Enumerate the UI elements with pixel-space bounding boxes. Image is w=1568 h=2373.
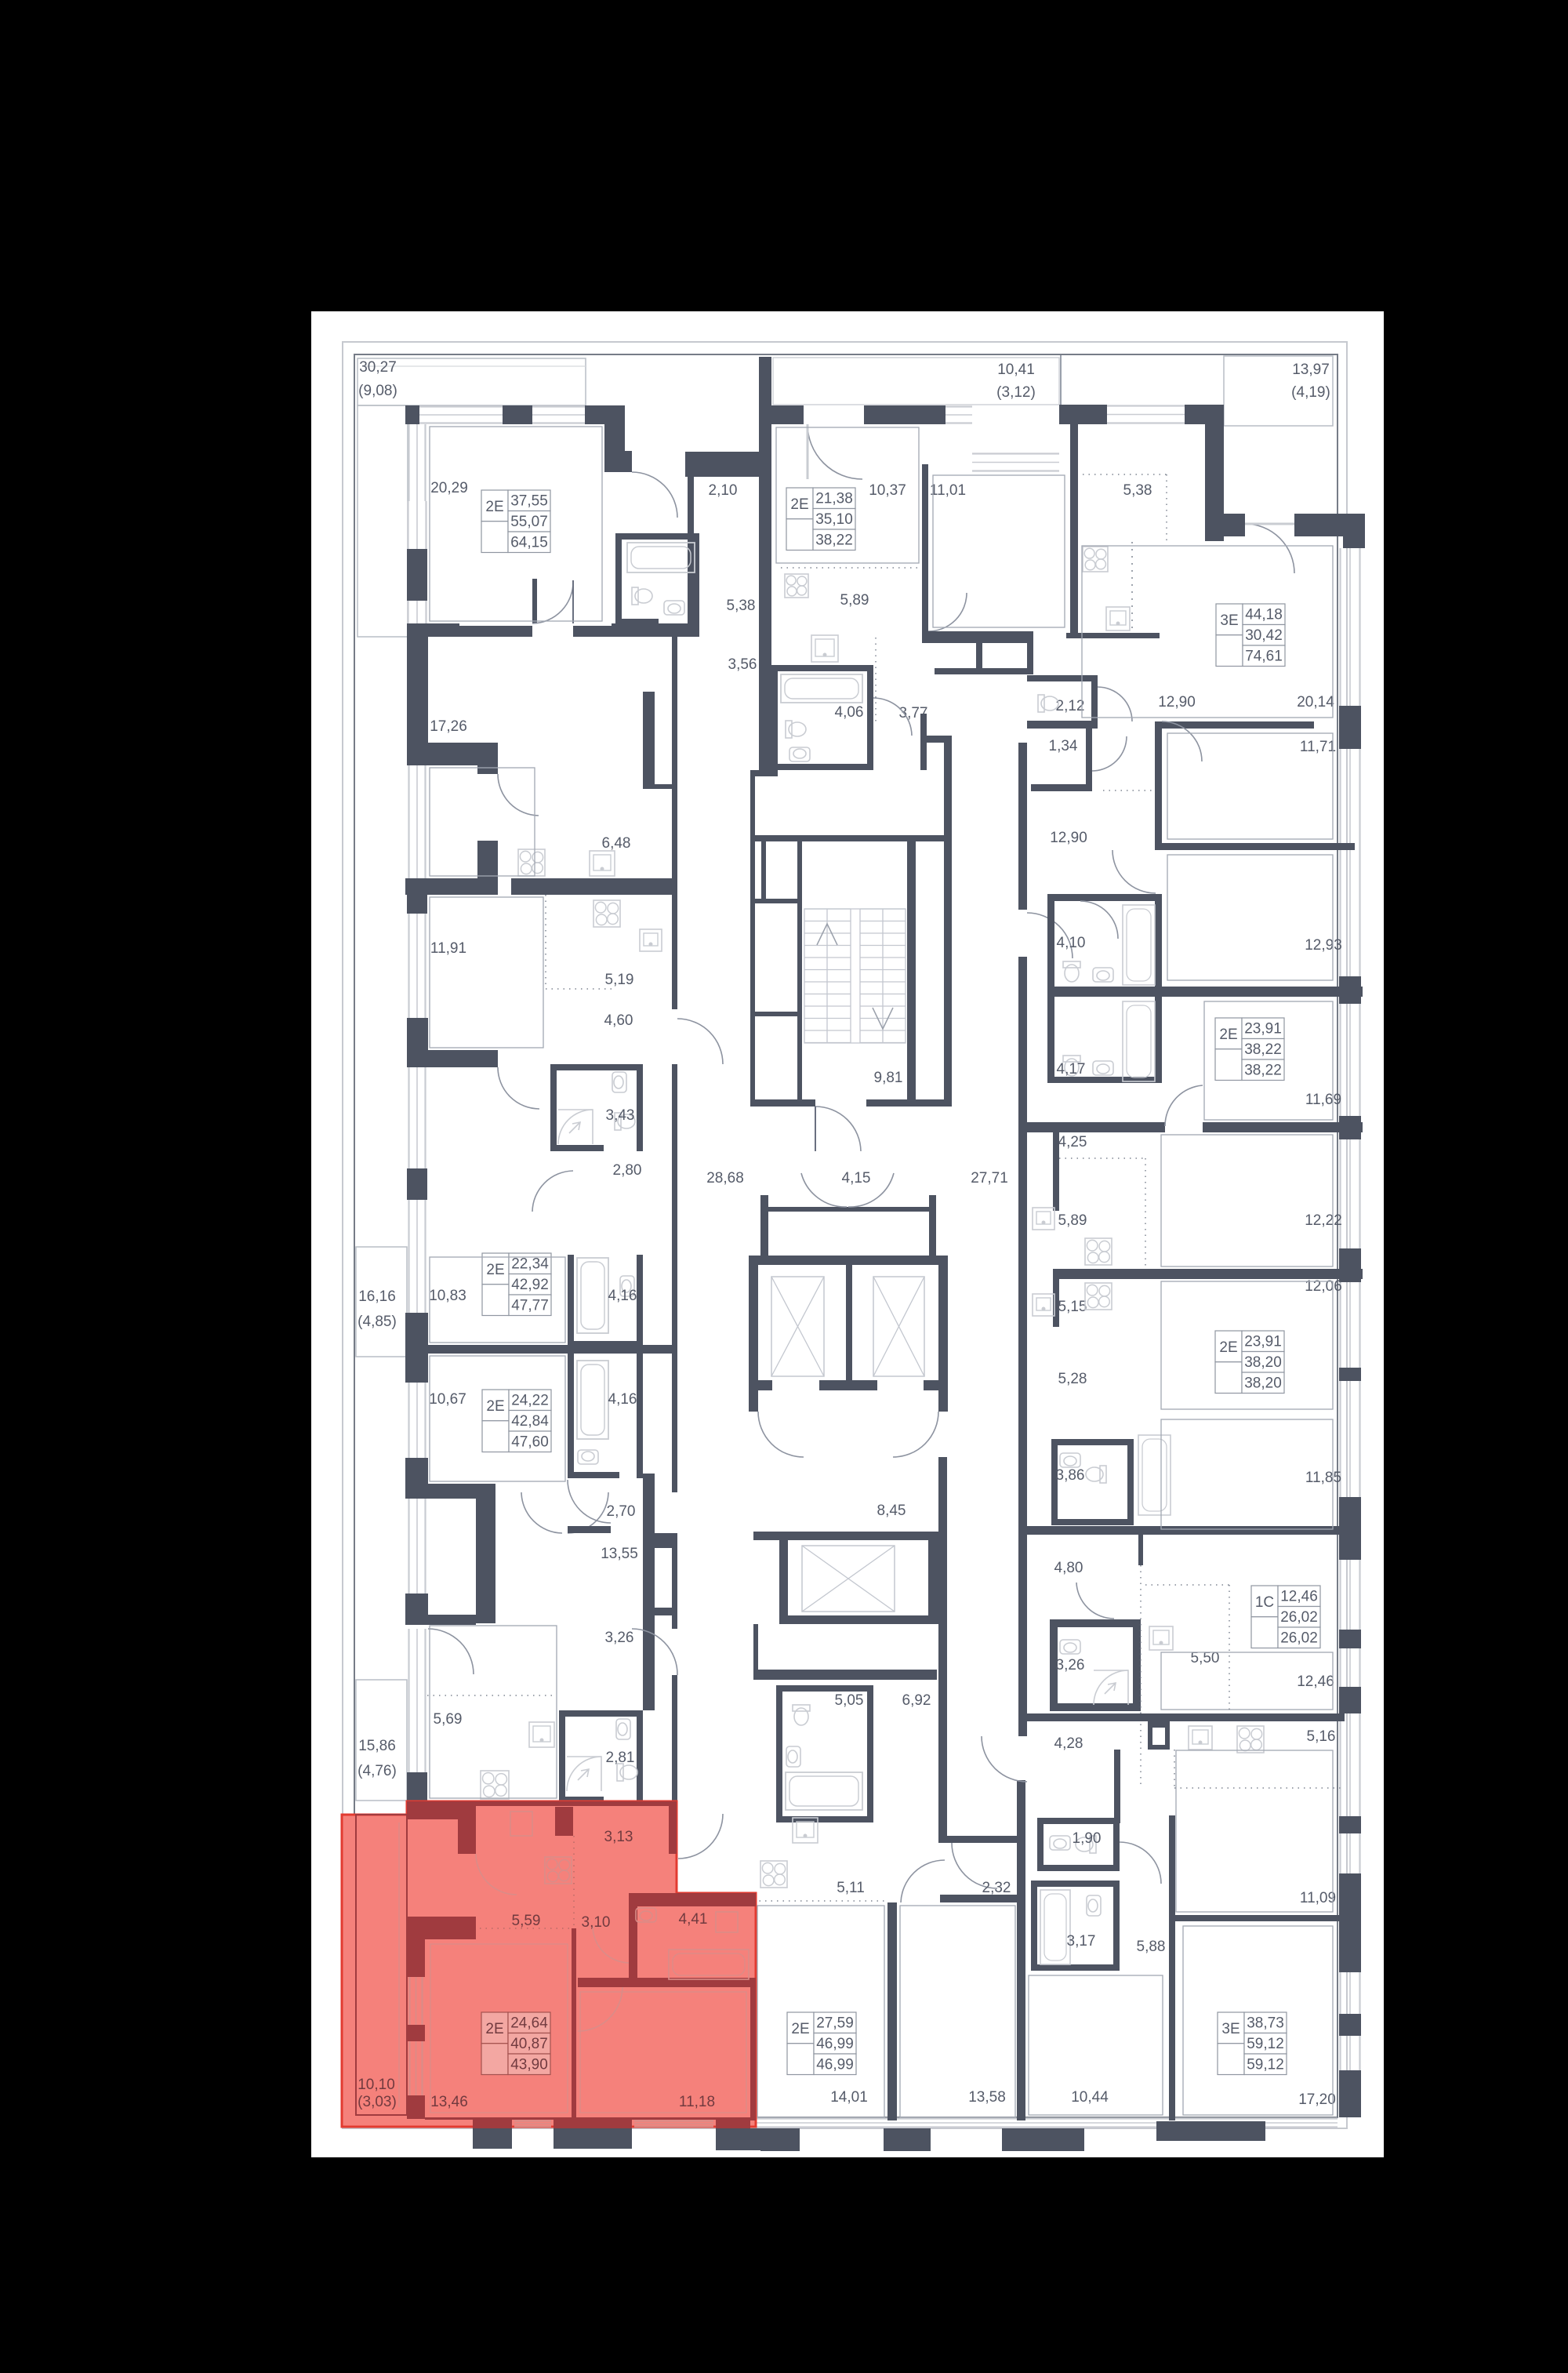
svg-text:12,06: 12,06 xyxy=(1305,1278,1342,1295)
svg-text:3,43: 3,43 xyxy=(606,1107,635,1124)
svg-text:5,28: 5,28 xyxy=(1058,1371,1087,1387)
svg-text:22,34: 22,34 xyxy=(511,1256,549,1273)
svg-text:3,13: 3,13 xyxy=(604,1829,633,1845)
svg-text:26,02: 26,02 xyxy=(1280,1609,1318,1626)
svg-text:11,01: 11,01 xyxy=(930,482,966,499)
svg-text:3,86: 3,86 xyxy=(1056,1467,1085,1484)
svg-text:11,85: 11,85 xyxy=(1305,1470,1341,1486)
svg-text:9,81: 9,81 xyxy=(874,1070,903,1086)
svg-text:4,25: 4,25 xyxy=(1058,1134,1087,1150)
svg-text:6,92: 6,92 xyxy=(902,1692,931,1709)
svg-text:5,88: 5,88 xyxy=(1137,1939,1166,1955)
svg-text:27,71: 27,71 xyxy=(971,1170,1008,1186)
svg-text:5,38: 5,38 xyxy=(727,598,756,614)
svg-text:13,46: 13,46 xyxy=(430,2094,468,2110)
svg-text:55,07: 55,07 xyxy=(510,514,548,530)
svg-text:12,90: 12,90 xyxy=(1050,830,1087,846)
svg-text:13,97: 13,97 xyxy=(1292,362,1330,378)
svg-text:2,80: 2,80 xyxy=(613,1162,642,1179)
svg-text:4,60: 4,60 xyxy=(604,1012,633,1029)
svg-text:5,11: 5,11 xyxy=(837,1880,865,1896)
svg-text:11,69: 11,69 xyxy=(1305,1092,1341,1108)
svg-text:59,12: 59,12 xyxy=(1247,2057,1284,2073)
svg-text:46,99: 46,99 xyxy=(816,2057,854,2073)
svg-text:4,16: 4,16 xyxy=(608,1288,637,1304)
svg-text:4,41: 4,41 xyxy=(679,1911,708,1928)
svg-text:5,19: 5,19 xyxy=(605,972,634,988)
svg-text:2E: 2E xyxy=(1219,1027,1237,1043)
svg-text:26,02: 26,02 xyxy=(1280,1630,1318,1647)
svg-text:3,56: 3,56 xyxy=(728,656,757,673)
svg-text:30,42: 30,42 xyxy=(1245,627,1283,644)
svg-text:13,55: 13,55 xyxy=(601,1546,638,1562)
svg-text:1,90: 1,90 xyxy=(1073,1830,1102,1847)
svg-text:2,12: 2,12 xyxy=(1056,698,1085,714)
svg-text:38,22: 38,22 xyxy=(1244,1041,1282,1058)
svg-text:43,90: 43,90 xyxy=(510,2057,548,2073)
svg-text:11,18: 11,18 xyxy=(679,2094,715,2110)
svg-text:42,92: 42,92 xyxy=(511,1277,549,1293)
svg-text:5,38: 5,38 xyxy=(1123,482,1152,499)
svg-text:37,55: 37,55 xyxy=(510,493,548,510)
svg-text:2E: 2E xyxy=(791,2021,809,2037)
svg-text:3,17: 3,17 xyxy=(1067,1933,1096,1950)
svg-text:(3,12): (3,12) xyxy=(996,384,1036,401)
svg-text:10,10: 10,10 xyxy=(358,2077,395,2093)
svg-text:10,41: 10,41 xyxy=(997,362,1035,378)
svg-text:11,91: 11,91 xyxy=(430,940,466,957)
svg-text:2E: 2E xyxy=(790,496,808,513)
svg-text:12,22: 12,22 xyxy=(1305,1212,1342,1229)
svg-text:24,64: 24,64 xyxy=(510,2015,548,2032)
svg-text:8,45: 8,45 xyxy=(877,1503,906,1519)
svg-text:47,77: 47,77 xyxy=(511,1298,549,1314)
svg-text:12,46: 12,46 xyxy=(1280,1589,1318,1605)
svg-text:4,80: 4,80 xyxy=(1054,1560,1083,1576)
svg-text:11,09: 11,09 xyxy=(1300,1890,1336,1906)
svg-text:2E: 2E xyxy=(486,1398,504,1415)
svg-text:42,84: 42,84 xyxy=(511,1413,549,1430)
svg-text:23,91: 23,91 xyxy=(1244,1334,1282,1350)
svg-text:2,32: 2,32 xyxy=(982,1880,1011,1896)
svg-text:2,81: 2,81 xyxy=(606,1750,635,1766)
svg-text:11,71: 11,71 xyxy=(1300,739,1336,755)
svg-text:12,93: 12,93 xyxy=(1305,937,1342,954)
svg-text:5,15: 5,15 xyxy=(1058,1299,1087,1315)
svg-text:3,26: 3,26 xyxy=(605,1630,634,1646)
svg-text:20,29: 20,29 xyxy=(430,480,468,496)
svg-text:(9,08): (9,08) xyxy=(358,383,397,399)
svg-text:17,26: 17,26 xyxy=(430,718,467,735)
svg-text:59,12: 59,12 xyxy=(1247,2036,1284,2052)
svg-text:4,28: 4,28 xyxy=(1054,1735,1083,1752)
svg-text:13,58: 13,58 xyxy=(968,2089,1006,2106)
svg-text:2,70: 2,70 xyxy=(607,1503,636,1520)
svg-text:1C: 1C xyxy=(1255,1594,1274,1611)
svg-text:30,27: 30,27 xyxy=(359,359,397,376)
svg-text:4,16: 4,16 xyxy=(608,1391,637,1408)
svg-text:12,90: 12,90 xyxy=(1158,694,1196,710)
svg-text:38,20: 38,20 xyxy=(1244,1354,1282,1371)
svg-text:24,22: 24,22 xyxy=(511,1393,549,1409)
svg-text:10,37: 10,37 xyxy=(869,482,906,499)
svg-text:35,10: 35,10 xyxy=(815,511,853,528)
svg-text:14,01: 14,01 xyxy=(830,2089,868,2106)
svg-text:3,26: 3,26 xyxy=(1056,1657,1085,1673)
svg-text:3E: 3E xyxy=(1221,2021,1240,2037)
svg-text:2E: 2E xyxy=(485,2021,503,2037)
svg-text:5,89: 5,89 xyxy=(1058,1212,1087,1229)
svg-text:5,69: 5,69 xyxy=(434,1711,463,1728)
svg-text:(4,19): (4,19) xyxy=(1291,384,1330,401)
svg-text:4,10: 4,10 xyxy=(1057,935,1086,951)
svg-text:12,46: 12,46 xyxy=(1297,1673,1334,1690)
svg-text:28,68: 28,68 xyxy=(706,1170,744,1186)
svg-text:38,22: 38,22 xyxy=(815,532,853,549)
svg-text:4,15: 4,15 xyxy=(842,1170,871,1186)
svg-text:27,59: 27,59 xyxy=(816,2015,854,2032)
svg-text:5,05: 5,05 xyxy=(835,1692,864,1709)
svg-text:20,14: 20,14 xyxy=(1297,694,1334,710)
svg-text:64,15: 64,15 xyxy=(510,535,548,551)
svg-text:3E: 3E xyxy=(1220,612,1238,629)
svg-text:(4,85): (4,85) xyxy=(358,1314,397,1330)
svg-text:(4,76): (4,76) xyxy=(358,1763,397,1779)
svg-text:4,06: 4,06 xyxy=(835,704,864,721)
svg-text:2E: 2E xyxy=(1219,1339,1237,1356)
svg-text:17,20: 17,20 xyxy=(1298,2091,1336,2108)
svg-text:21,38: 21,38 xyxy=(815,491,853,507)
svg-text:10,44: 10,44 xyxy=(1071,2089,1109,2106)
svg-text:15,86: 15,86 xyxy=(358,1738,396,1754)
svg-text:38,20: 38,20 xyxy=(1244,1375,1282,1392)
svg-text:5,16: 5,16 xyxy=(1307,1728,1336,1745)
svg-text:6,48: 6,48 xyxy=(602,835,631,852)
svg-text:38,22: 38,22 xyxy=(1244,1063,1282,1079)
svg-text:23,91: 23,91 xyxy=(1244,1021,1282,1038)
svg-text:3,10: 3,10 xyxy=(582,1914,611,1931)
svg-text:2E: 2E xyxy=(486,1262,504,1278)
svg-text:10,67: 10,67 xyxy=(429,1391,466,1408)
svg-text:74,61: 74,61 xyxy=(1245,649,1283,665)
svg-text:(3,03): (3,03) xyxy=(358,2094,397,2110)
svg-text:2,10: 2,10 xyxy=(709,482,738,499)
svg-text:46,99: 46,99 xyxy=(816,2036,854,2052)
svg-text:16,16: 16,16 xyxy=(358,1288,396,1305)
svg-text:5,59: 5,59 xyxy=(512,1913,541,1929)
svg-text:10,83: 10,83 xyxy=(429,1288,466,1304)
svg-text:38,73: 38,73 xyxy=(1247,2015,1284,2032)
svg-text:1,34: 1,34 xyxy=(1049,738,1078,754)
svg-text:4,17: 4,17 xyxy=(1057,1061,1086,1077)
svg-text:40,87: 40,87 xyxy=(510,2036,548,2052)
svg-text:2E: 2E xyxy=(485,499,503,515)
svg-text:44,18: 44,18 xyxy=(1245,607,1283,623)
svg-text:5,89: 5,89 xyxy=(840,592,869,609)
svg-text:47,60: 47,60 xyxy=(511,1434,549,1451)
